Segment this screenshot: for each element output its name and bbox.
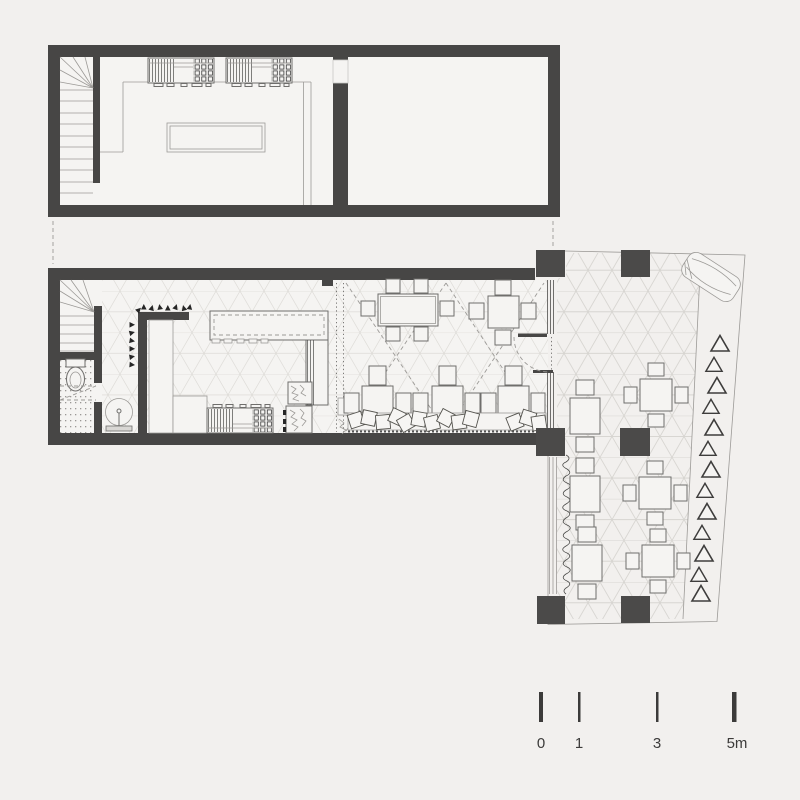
scale-tick-minor: [578, 692, 581, 722]
ground-top-wall: [48, 268, 535, 280]
scale-label-3: 3: [653, 735, 661, 752]
terrace-column: [537, 596, 565, 624]
terrace-fence: [550, 457, 557, 594]
kitchen-partition: [149, 320, 173, 433]
projection-lines: [53, 221, 553, 264]
terrace-column: [620, 428, 650, 456]
terrace-column: [536, 250, 565, 277]
scale-tick-major: [539, 692, 543, 722]
wall-stub: [322, 280, 333, 286]
upper-door-opening: [333, 60, 348, 83]
terrace-column: [621, 596, 650, 623]
ground-bottom-wall: [48, 433, 547, 445]
scale-bar: 0 1 3 5m: [537, 692, 748, 752]
kitchen-counter: [173, 396, 207, 433]
bar-counter: [210, 311, 328, 343]
kitchen-range: [207, 405, 273, 434]
kitchen-appliance-lower: [283, 406, 312, 433]
kitchen-appliance-upper: [288, 382, 312, 404]
scale-label-0: 0: [537, 735, 545, 752]
floor-plan-page: 0 1 3 5m: [0, 0, 800, 800]
ground-floor-plan: [48, 268, 554, 445]
upper-floor-plan: [48, 45, 560, 217]
scale-label-1: 1: [575, 735, 583, 752]
terrace: [536, 249, 745, 625]
upper-work-table: [167, 123, 265, 152]
tree-row: [691, 336, 729, 602]
floor-plan-drawing: 0 1 3 5m: [0, 0, 800, 800]
terrace-column: [621, 250, 650, 277]
round-basin-icon: [106, 399, 133, 432]
scale-tick-minor: [656, 692, 659, 722]
terrace-column: [536, 428, 565, 456]
upper-right-room: [348, 57, 548, 205]
upper-cooking-range-2: [226, 58, 292, 87]
upper-cooking-range-1: [148, 58, 214, 87]
scale-tick-major: [732, 692, 737, 722]
scale-label-5m: 5m: [727, 735, 748, 752]
